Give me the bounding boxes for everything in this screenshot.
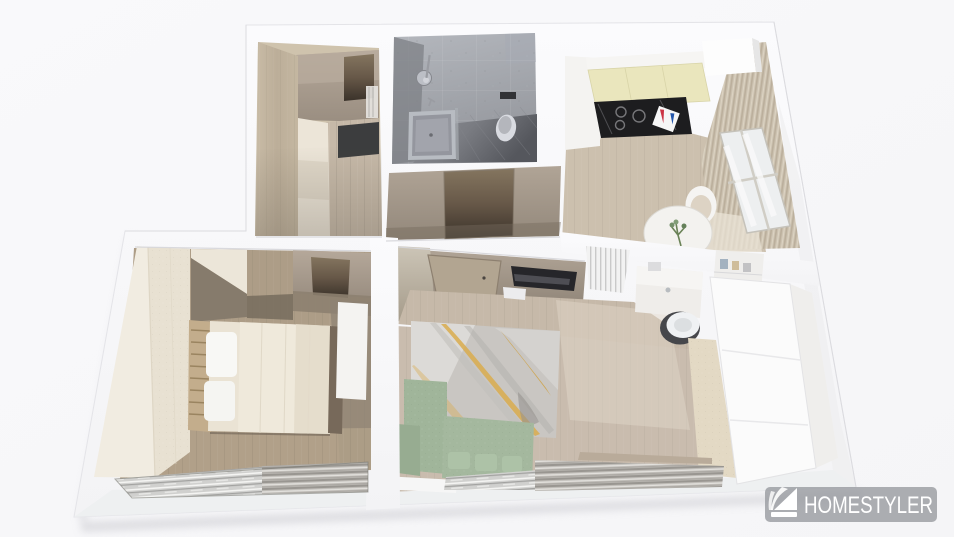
svg-text:HOMESTYLER: HOMESTYLER bbox=[804, 492, 933, 519]
